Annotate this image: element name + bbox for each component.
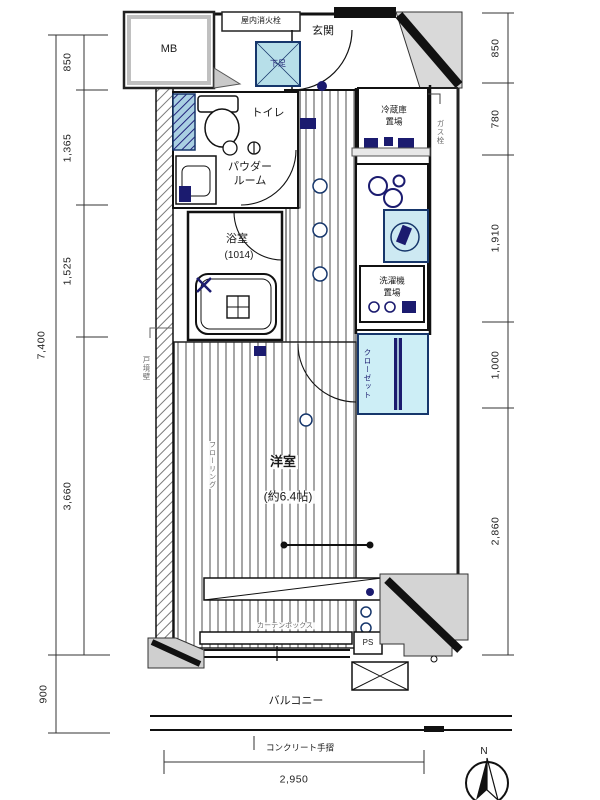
dim-left-3: 3,660 bbox=[62, 482, 73, 511]
washer-label: 洗濯機 bbox=[379, 277, 405, 286]
bathroom bbox=[188, 212, 282, 340]
stove-knob bbox=[394, 176, 405, 187]
dim-left-0: 850 bbox=[62, 52, 73, 71]
flooring-label: フローリング bbox=[206, 441, 217, 489]
entrance-label: 玄関 bbox=[312, 26, 334, 38]
pipe-space-label: PS bbox=[363, 639, 374, 647]
dim-bottom-width: 2,950 bbox=[280, 774, 309, 785]
dim-balcony-depth: 900 bbox=[38, 684, 49, 703]
powder-room-label2: ルーム bbox=[234, 176, 267, 188]
gas-valve-label: ガス栓 bbox=[436, 119, 444, 145]
right-exterior-wall bbox=[430, 88, 458, 574]
floor-plan: MB 屋内消火栓 玄関 下足 トイレ パウダー ルーム 浴室 (1014) 冷蔵… bbox=[0, 0, 600, 800]
top-right-corner-wall bbox=[396, 12, 462, 88]
downlight-icon bbox=[313, 179, 327, 193]
bottom-dimension-line bbox=[164, 750, 424, 774]
dim-right-1: 780 bbox=[490, 109, 501, 128]
washing-machine-space bbox=[173, 94, 195, 150]
boundary-wall-label: 戸境壁 bbox=[142, 355, 150, 381]
dim-right-3: 1,000 bbox=[490, 351, 501, 380]
sink-bowl bbox=[223, 141, 237, 155]
floor-plan-drawing bbox=[0, 0, 600, 800]
vanity-unit bbox=[176, 156, 216, 204]
curtain-box-label: カーテンボックス bbox=[255, 622, 315, 629]
dim-left-2: 1,525 bbox=[62, 257, 73, 286]
left-dimension-lines bbox=[48, 35, 110, 733]
fire-hydrant-label: 屋内消火栓 bbox=[241, 17, 281, 25]
western-room-size-label: (約6.4帖) bbox=[262, 491, 315, 504]
downlight-icon bbox=[313, 223, 327, 237]
fridge-label2: 置場 bbox=[385, 118, 402, 127]
bottom-right-wall bbox=[380, 574, 468, 662]
powder-room-label: パウダー bbox=[228, 162, 272, 174]
intercom-icon bbox=[317, 81, 327, 91]
north-compass bbox=[466, 758, 508, 800]
left-exterior-wall bbox=[156, 88, 173, 654]
stove-burner bbox=[384, 189, 402, 207]
stove-burner bbox=[369, 177, 387, 195]
balcony-label: バルコニー bbox=[269, 696, 324, 708]
bath-label: 浴室 bbox=[226, 234, 248, 246]
balcony bbox=[150, 662, 512, 750]
washer-label2: 置場 bbox=[383, 289, 400, 298]
dim-left-1: 1,365 bbox=[62, 134, 73, 163]
dim-left-total: 7,400 bbox=[36, 331, 47, 360]
downlight-icon bbox=[300, 414, 312, 426]
dim-right-2: 1,910 bbox=[490, 224, 501, 253]
outlet-icon bbox=[361, 607, 371, 617]
meter-box-label: MB bbox=[161, 44, 178, 56]
north-label: N bbox=[480, 747, 487, 758]
closet-label: クローゼット bbox=[363, 349, 371, 400]
handrail-label: コンクリート手摺 bbox=[266, 744, 334, 753]
outlet-icon bbox=[254, 346, 266, 356]
fridge-label: 冷蔵庫 bbox=[381, 106, 407, 115]
bath-size-label: (1014) bbox=[225, 251, 254, 262]
outlet-icon bbox=[300, 118, 316, 129]
shoe-box-label: 下足 bbox=[270, 60, 286, 68]
dim-right-4: 2,860 bbox=[490, 517, 501, 546]
western-room-label: 洋室 bbox=[268, 455, 298, 469]
toilet-bowl bbox=[205, 109, 239, 147]
dim-right-0: 850 bbox=[490, 38, 501, 57]
curtain-box bbox=[204, 578, 382, 600]
toilet-label: トイレ bbox=[250, 108, 287, 120]
downlight-icon bbox=[313, 267, 327, 281]
